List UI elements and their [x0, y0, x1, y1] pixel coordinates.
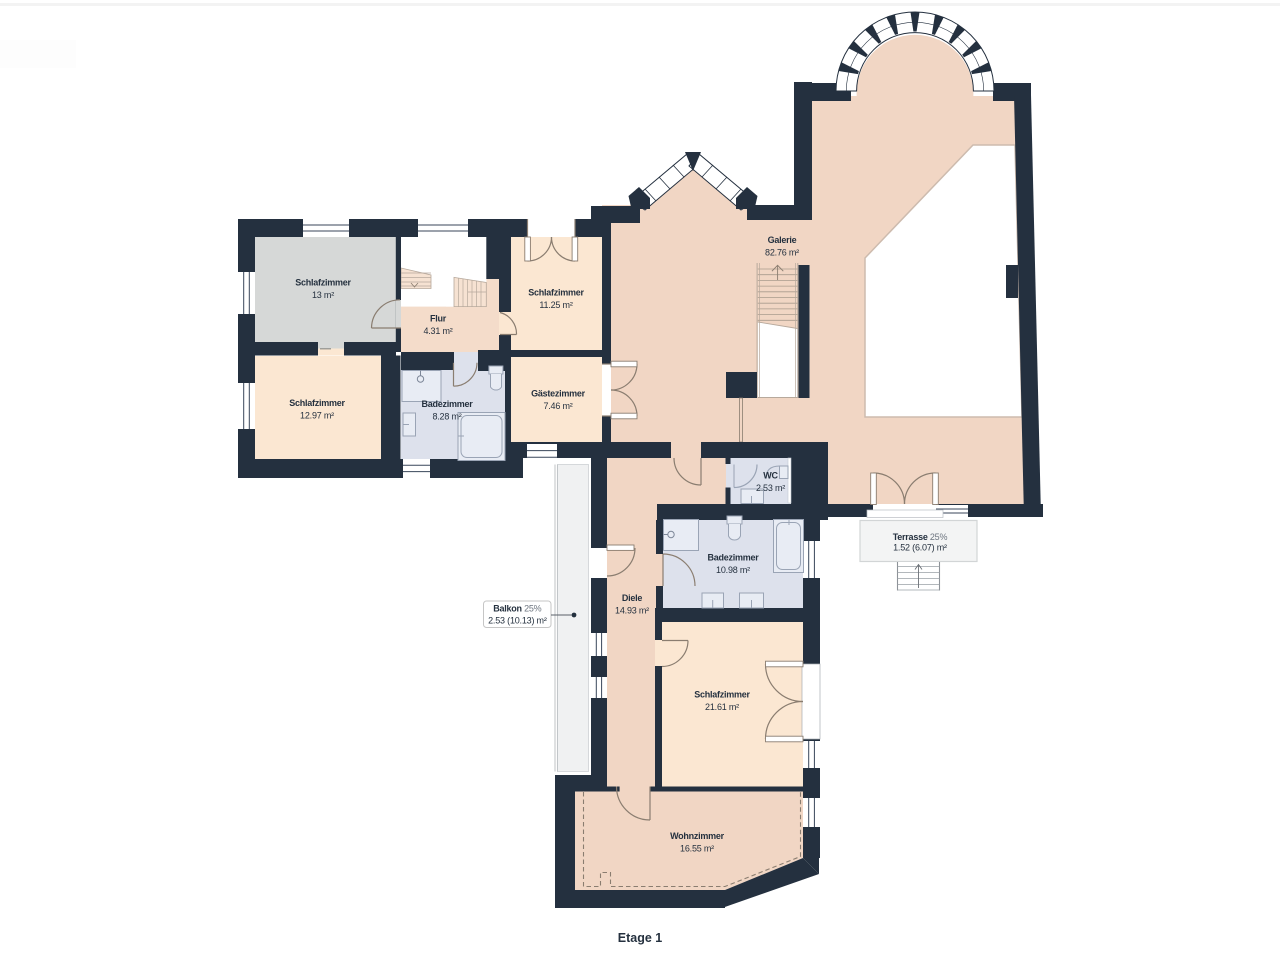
svg-text:1.52 (6.07) m²: 1.52 (6.07) m² — [893, 543, 947, 553]
svg-text:4.31 m²: 4.31 m² — [423, 326, 452, 336]
svg-text:Badezimmer: Badezimmer — [707, 553, 759, 563]
svg-text:Balkon 25%: Balkon 25% — [493, 604, 541, 614]
svg-text:13 m²: 13 m² — [312, 290, 334, 300]
svg-text:21.61 m²: 21.61 m² — [705, 702, 739, 712]
svg-text:Wohnzimmer: Wohnzimmer — [670, 831, 725, 841]
svg-text:Schlafzimmer: Schlafzimmer — [528, 288, 584, 298]
svg-text:Schlafzimmer: Schlafzimmer — [289, 398, 345, 408]
svg-text:WC: WC — [763, 471, 778, 481]
svg-text:Gästezimmer: Gästezimmer — [531, 389, 586, 399]
svg-text:7.46 m²: 7.46 m² — [543, 401, 572, 411]
svg-text:11.25 m²: 11.25 m² — [539, 300, 572, 310]
svg-text:2.53 m²: 2.53 m² — [756, 483, 785, 493]
svg-text:Terrasse 25%: Terrasse 25% — [893, 532, 948, 542]
svg-text:12.97 m²: 12.97 m² — [300, 411, 334, 421]
svg-text:14.93 m²: 14.93 m² — [615, 606, 649, 616]
svg-text:2.53 (10.13) m²: 2.53 (10.13) m² — [488, 616, 547, 626]
svg-text:82.76 m²: 82.76 m² — [765, 248, 799, 258]
svg-text:16.55 m²: 16.55 m² — [680, 844, 714, 854]
svg-text:Galerie: Galerie — [768, 235, 797, 245]
svg-text:8.28 m²: 8.28 m² — [432, 412, 461, 422]
svg-text:Badezimmer: Badezimmer — [421, 399, 473, 409]
svg-text:Diele: Diele — [622, 593, 643, 603]
svg-text:Flur: Flur — [430, 314, 447, 324]
svg-text:Schlafzimmer: Schlafzimmer — [295, 278, 351, 288]
svg-text:Schlafzimmer: Schlafzimmer — [694, 690, 750, 700]
svg-text:10.98 m²: 10.98 m² — [716, 565, 750, 575]
svg-text:Etage 1: Etage 1 — [618, 931, 663, 945]
